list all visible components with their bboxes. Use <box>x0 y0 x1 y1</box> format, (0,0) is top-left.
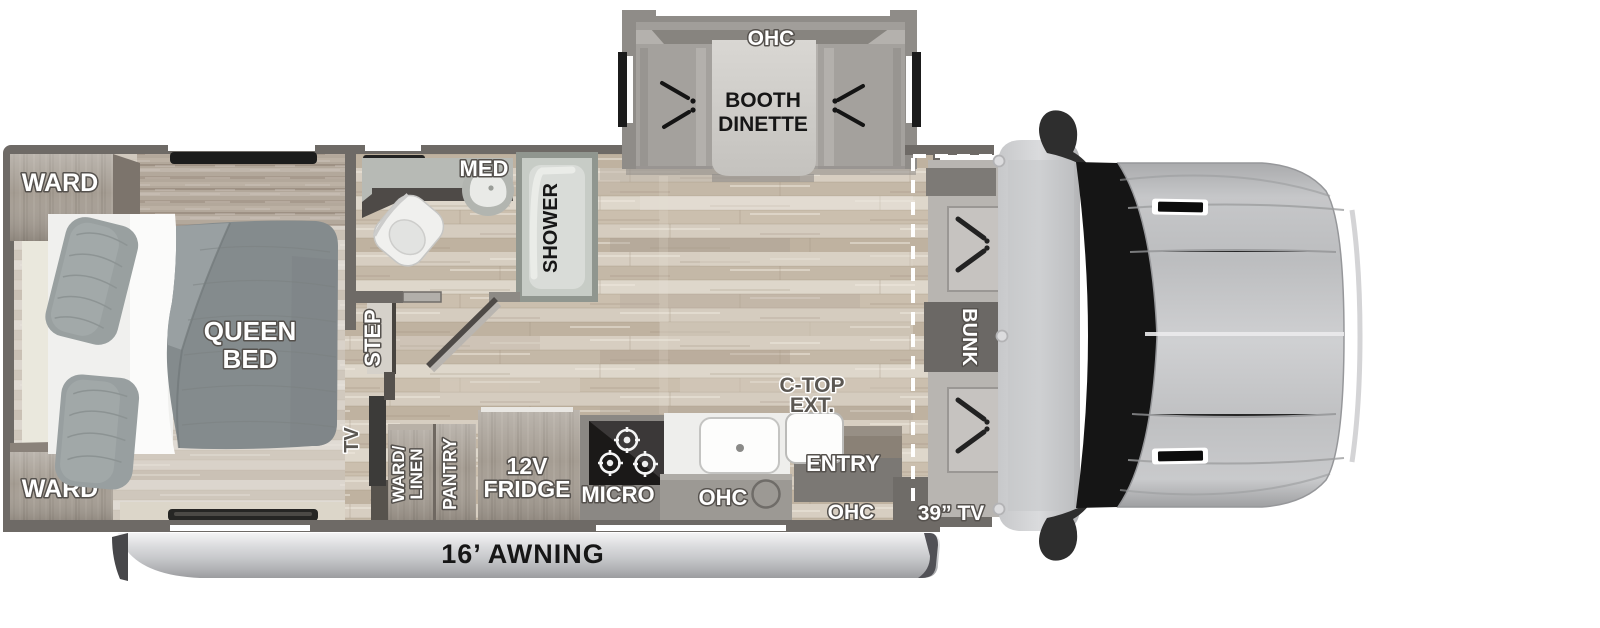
svg-text:MICRO: MICRO <box>581 482 654 507</box>
svg-text:WARD/: WARD/ <box>389 445 408 502</box>
svg-text:LINEN: LINEN <box>407 449 426 500</box>
svg-text:BED: BED <box>223 344 278 374</box>
svg-text:OHC: OHC <box>748 27 795 50</box>
svg-text:TV: TV <box>341 427 363 453</box>
svg-text:ENTRY: ENTRY <box>806 451 880 476</box>
svg-text:16’ AWNING: 16’ AWNING <box>441 539 605 569</box>
svg-text:MED: MED <box>460 156 509 181</box>
svg-text:BUNK: BUNK <box>958 308 980 366</box>
svg-text:SHOWER: SHOWER <box>540 182 562 273</box>
svg-text:DINETTE: DINETTE <box>718 113 808 136</box>
svg-text:WARD: WARD <box>22 169 98 197</box>
svg-text:39” TV: 39” TV <box>918 502 985 525</box>
svg-text:STEP: STEP <box>360 309 385 366</box>
svg-text:FRIDGE: FRIDGE <box>484 476 571 502</box>
svg-text:PANTRY: PANTRY <box>440 438 460 510</box>
svg-text:BOOTH: BOOTH <box>725 89 801 112</box>
svg-text:OHC: OHC <box>828 501 875 524</box>
svg-text:EXT.: EXT. <box>790 394 834 417</box>
svg-text:OHC: OHC <box>699 485 748 510</box>
svg-text:QUEEN: QUEEN <box>204 316 296 346</box>
